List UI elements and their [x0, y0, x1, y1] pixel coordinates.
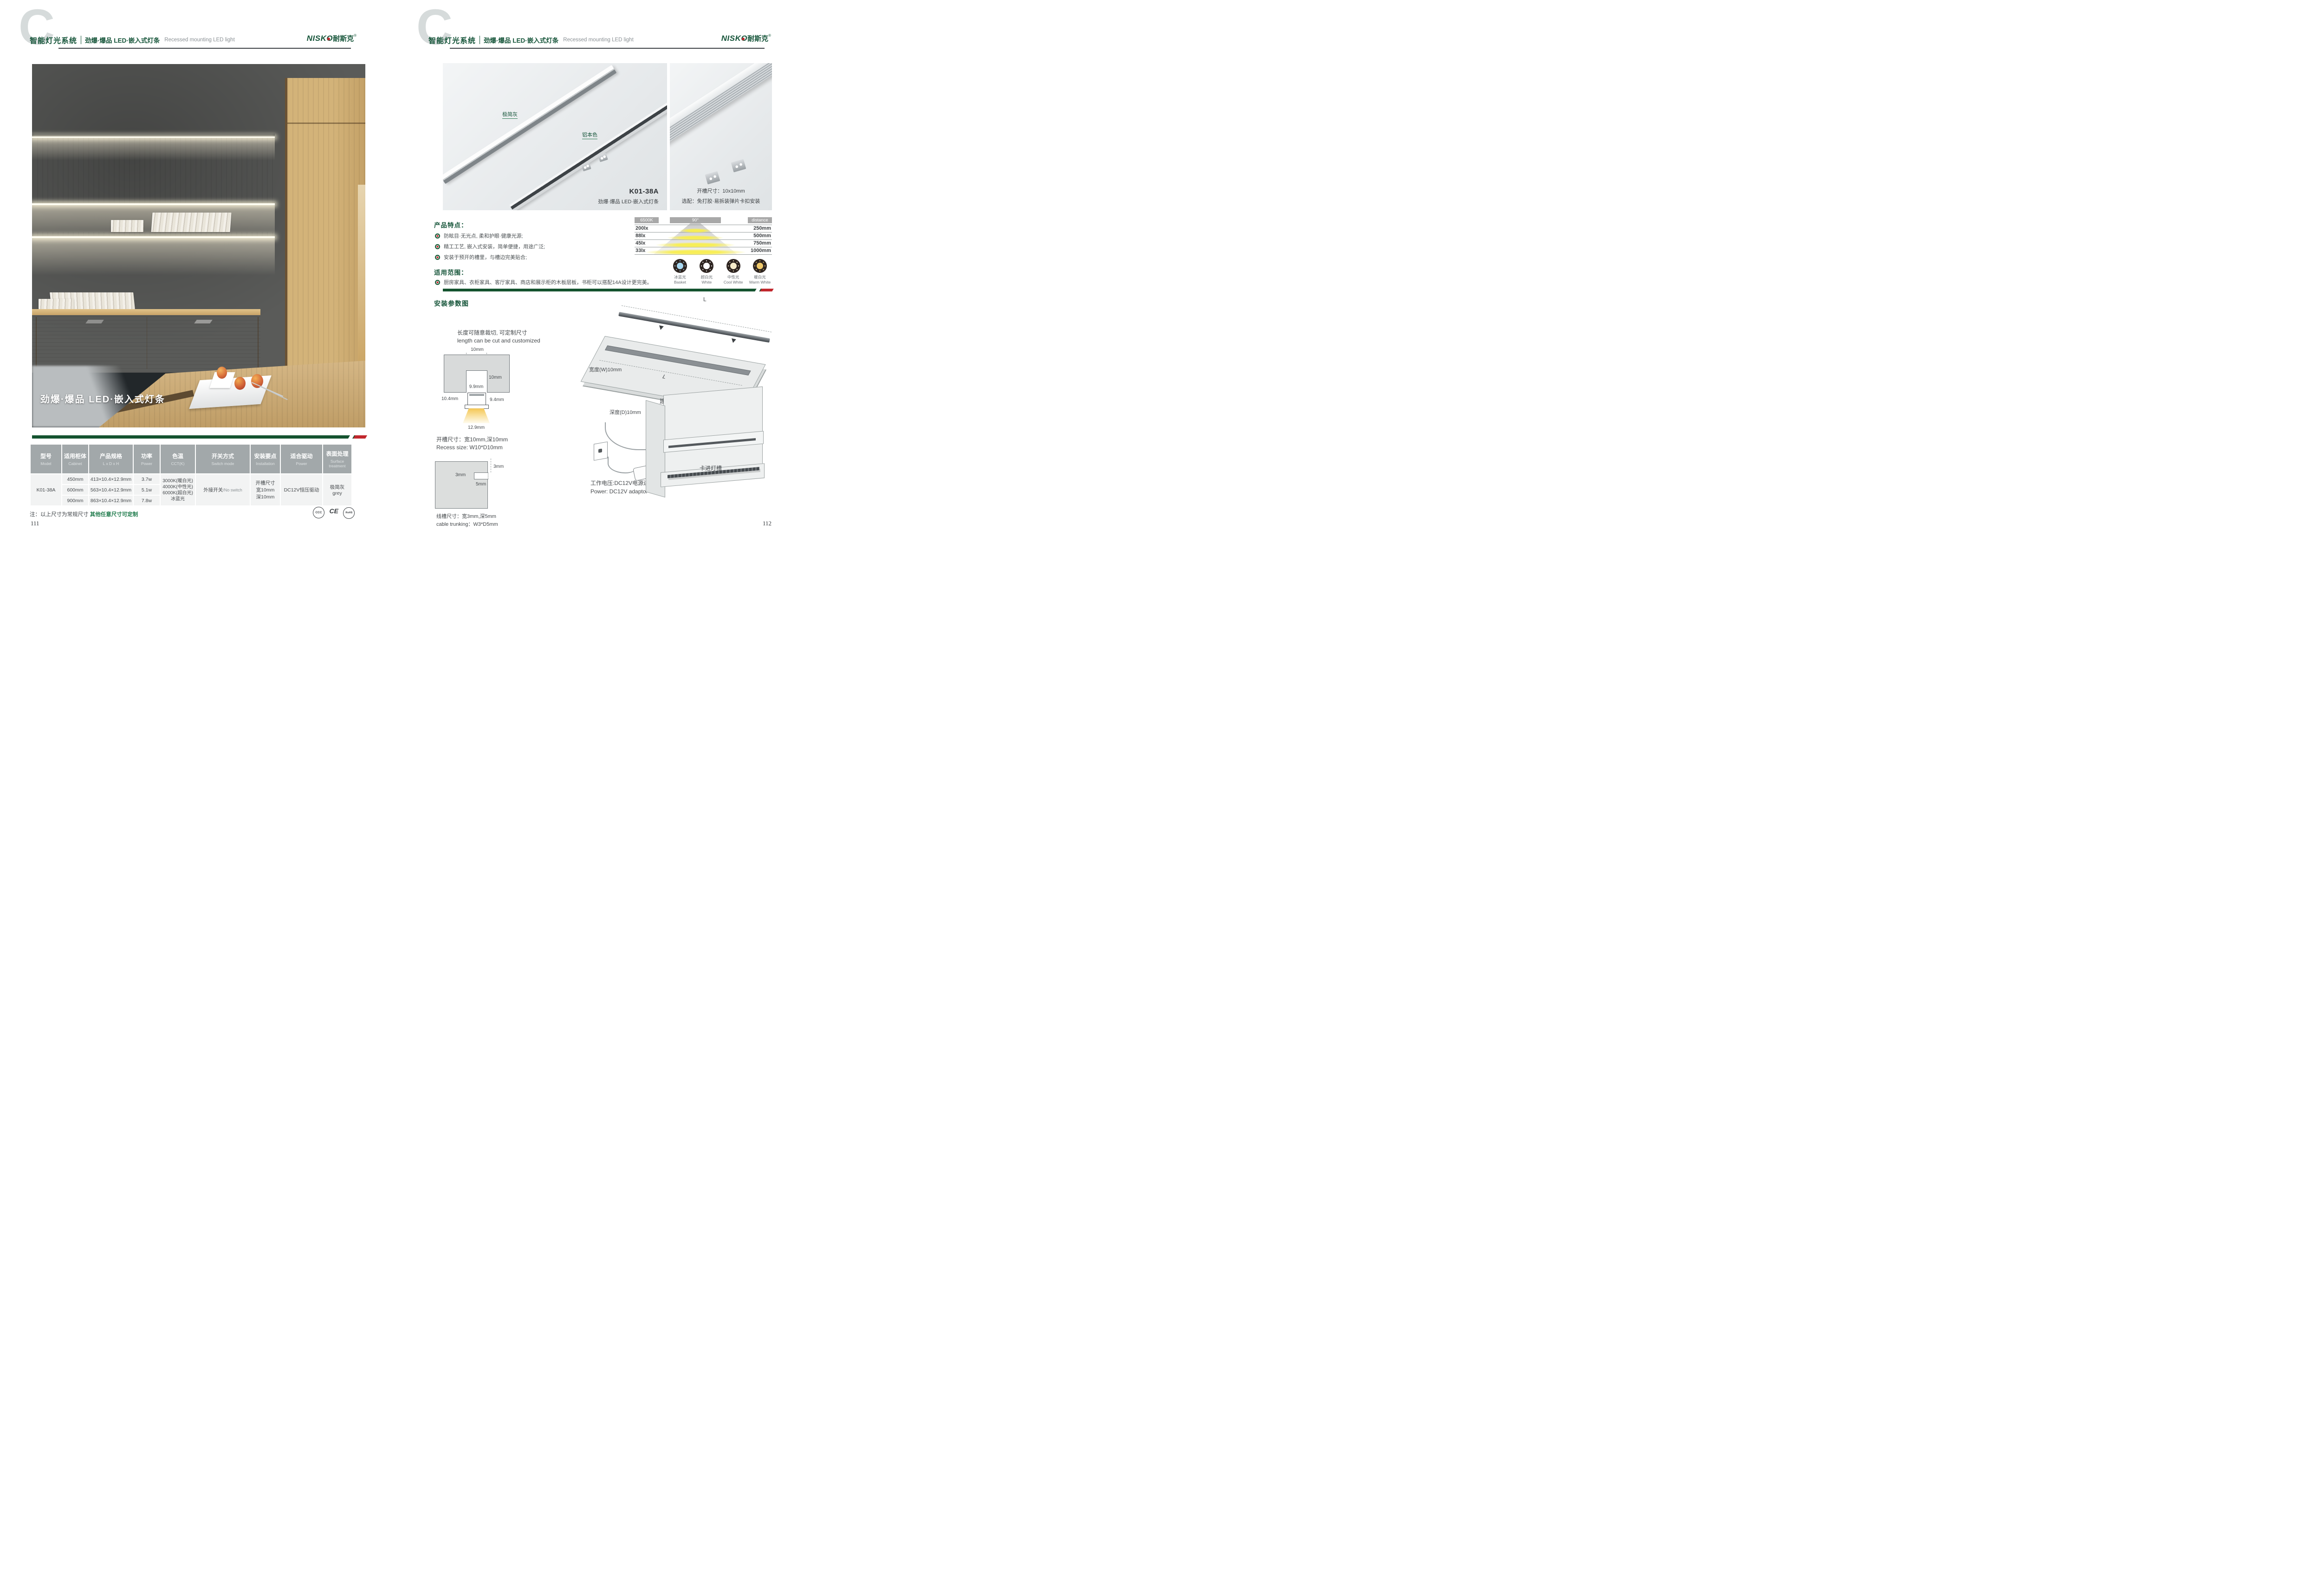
trunk-size-cn: 线槽尺寸：宽3mm,深5mm [436, 512, 496, 520]
mounting-clip [731, 159, 746, 173]
color-label-aluminum: 铝本色 [582, 131, 597, 139]
light-cone [463, 408, 490, 423]
slot-size-caption: 开槽尺寸：10x10mm [670, 187, 772, 194]
photo-shelf [32, 232, 275, 236]
photo-peach [217, 367, 227, 379]
photo-books [151, 213, 232, 232]
feature-item: 精工工艺, 嵌入式安装，简单便捷，用途广泛; [435, 243, 545, 250]
distance-value: 500mm [753, 233, 771, 239]
header-rule [58, 48, 351, 49]
beam-distance-chart: 6500K 90° distance 200lx 88lx 45lx 33lx … [635, 217, 772, 257]
brand-logo-cn: 耐斯克 [747, 35, 768, 43]
dim-inner-width: 9.9mm [466, 384, 486, 389]
width-label: 宽度(W)10mm [589, 366, 622, 373]
light-pool [656, 242, 735, 248]
header-system-title: 智能灯光系统 [30, 34, 77, 45]
cabinet-back-panel [663, 387, 763, 474]
cell-cabinet: 450mm [62, 474, 88, 484]
cell-switch: 外接开关/No switch [196, 474, 250, 505]
cable [605, 422, 648, 450]
dim-top-width: 10mm [467, 347, 487, 352]
spec-row: K01-38A 450mm 413×10.4×12.9mm 3.7w 3000K… [31, 474, 351, 484]
photo-caption: 劲爆·爆品 LED·嵌入式灯条 [40, 392, 165, 405]
feature-item: 防眩目·无光点, 柔和护眼·健康光源; [435, 232, 523, 239]
divider-red-tip [353, 435, 367, 439]
photo-wood-panel [32, 138, 275, 203]
dim-right-height: 9.4mm [490, 397, 504, 402]
light-color-options: 冰蓝光Basket 超白光White 中性光Cool White 暖白光Warm… [668, 259, 772, 284]
power-spec-en: Power: DC12V adaptor [590, 488, 648, 495]
cable-trunk-diagram: 3mm 3mm 5mm [435, 459, 519, 510]
beam-distance-label: distance [748, 217, 772, 223]
cell-cabinet: 600mm [62, 485, 88, 495]
photo-sideboard-top [32, 309, 260, 315]
rohs-cert-icon: RoHS [343, 507, 355, 519]
header-subtitle-cn: 劲爆·爆品 LED·嵌入式灯条 [484, 35, 558, 45]
target-bullet-icon [435, 280, 440, 285]
depth-label: 深度(D)10mm [609, 408, 641, 416]
scope-item: 厨房家具、衣柜家具、客厅家具、商店和展示柜的木板层板，书柜可以搭配14A设计更完… [435, 278, 667, 286]
led-strip-gray [443, 65, 616, 184]
distance-value: 1000mm [751, 248, 771, 253]
light-color-warm-white: 暖白光Warm White [748, 259, 772, 284]
col-cct: 色温CCT(K) [161, 445, 195, 473]
cell-install: 开槽尺寸 宽10mm 深10mm [251, 474, 280, 505]
lifestyle-photo: 劲爆·爆品 LED·嵌入式灯条 [32, 64, 365, 427]
page-right: C 智能灯光系统 劲爆·爆品 LED·嵌入式灯条 Recessed mounti… [389, 0, 779, 532]
photo-books [39, 299, 74, 309]
col-driver: 适合驱动Power [281, 445, 322, 473]
model-number: K01-38A [629, 187, 659, 195]
brand-logo-dot-icon [742, 38, 745, 40]
distance-value: 750mm [753, 240, 771, 246]
target-bullet-icon [435, 233, 440, 239]
cabinet-sketch: 卡进灯槽 [645, 391, 773, 498]
page-left: C 智能灯光系统 劲爆·爆品 LED·嵌入式灯条 Recessed mounti… [0, 0, 389, 532]
cell-power: 3.7w [134, 474, 160, 484]
beam-cct-label: 6500K [635, 217, 659, 223]
dim-bottom-width: 12.9mm [463, 425, 490, 430]
cell-cabinet: 900mm [62, 496, 88, 505]
lux-value: 33lx [635, 248, 645, 253]
spec-header-row: 型号Model 适用柜体Cabinet 产品规格L x D x H 功率Powe… [31, 445, 351, 473]
header-rule [450, 48, 765, 49]
brand-logo-cn: 耐斯克 [333, 35, 354, 43]
cross-section-diagram: 10mm 10mm 9.9mm 10.4mm 9.4mm 12.9mm [441, 347, 516, 433]
product-photo-strips: 极简灰 铝本色 K01-38A 劲爆·爆品 LED·嵌入式灯条 [443, 63, 667, 210]
col-power: 功率Power [134, 445, 160, 473]
mounting-clip [705, 171, 720, 185]
feature-item: 安装于预开的槽里，与槽边完美贴合; [435, 253, 527, 261]
header-separator [480, 36, 480, 44]
profile-flange [465, 405, 489, 409]
divider-bar [32, 435, 365, 439]
ce-cert-icon: CE [329, 507, 338, 515]
dim-depth: 10mm [488, 375, 502, 380]
beam-angle-label: 90° [670, 217, 721, 223]
col-surface: 表面处理Surface treatment [323, 445, 351, 473]
certifications: CCC CE RoHS [310, 507, 355, 519]
cell-cct: 3000K(暖白光) 4000K(中性光) 6000K(超白光) 冰蓝光 [161, 474, 195, 505]
beam-gridline [635, 225, 772, 225]
distance-value: 250mm [753, 226, 771, 231]
catalog-spread: C 智能灯光系统 劲爆·爆品 LED·嵌入式灯条 Recessed mounti… [0, 0, 779, 532]
cell-driver: DC12V恒压驱动 [281, 474, 322, 505]
features-title: 产品特点： [434, 220, 468, 229]
scope-title: 适用范围： [434, 267, 468, 277]
cell-surface: 极简灰 grey [323, 474, 351, 505]
target-bullet-icon [435, 244, 440, 249]
col-model: 型号Model [31, 445, 61, 473]
arrow-down-icon [658, 325, 664, 330]
cut-note-cn: 长度可随意裁切, 可定制尺寸 [457, 329, 527, 336]
light-color-cool-white: 中性光Cool White [721, 259, 746, 284]
note-highlight: 其他任意尺寸可定制 [90, 512, 138, 517]
col-size: 产品规格L x D x H [89, 445, 133, 473]
sun-icon [726, 259, 740, 273]
cell-power: 5.1w [134, 485, 160, 495]
divider-red-tip [760, 289, 773, 291]
header-subtitle-cn: 劲爆·爆品 LED·嵌入式灯条 [85, 35, 160, 45]
photo-light-wash [32, 238, 275, 275]
cell-size: 413×10.4×12.9mm [89, 474, 133, 484]
brand-logo-registered: ® [354, 33, 357, 38]
sun-icon [700, 259, 713, 273]
trunk-dim-top: 3mm [493, 464, 504, 469]
ccc-cert-icon: CCC [313, 507, 324, 518]
dim-line [491, 459, 491, 472]
sun-icon [673, 259, 687, 273]
cell-size: 863×10.4×12.9mm [89, 496, 133, 505]
lux-value: 45lx [635, 240, 645, 246]
brand-logo-registered: ® [768, 33, 771, 38]
table-note: 注：以上尺寸为常规尺寸 其他任意尺寸可定制 [30, 510, 138, 518]
install-section-title: 安装参数图 [434, 299, 469, 308]
spec-table: 型号Model 适用柜体Cabinet 产品规格L x D x H 功率Powe… [30, 444, 352, 506]
photo-books [111, 220, 143, 232]
trunk-slot [474, 472, 488, 479]
sun-icon [753, 259, 767, 273]
header: 智能灯光系统 劲爆·爆品 LED·嵌入式灯条 Recessed mounting… [30, 34, 235, 45]
header-subtitle-en: Recessed mounting LED light [164, 37, 235, 43]
drawer-handle [85, 320, 104, 323]
wall-plate [594, 441, 608, 460]
product-photo-profile: 开槽尺寸：10x10mm 选配：免打胶·易拆装弹片卡扣安装 [670, 63, 772, 210]
header-separator [81, 36, 81, 44]
trunk-size-en: cable trunking：W3*D5mm [436, 520, 498, 528]
trunk-dim-depth: 5mm [476, 482, 486, 487]
photo-peach [234, 377, 246, 390]
brand-logo: NISKO耐斯克® [703, 33, 771, 43]
target-bullet-icon [435, 255, 440, 260]
header-system-title: 智能灯光系统 [428, 34, 476, 45]
board-groove [605, 345, 751, 375]
arrow-down-icon [731, 338, 736, 343]
drawer-handle [194, 320, 213, 323]
dim-left-height: 10.4mm [441, 396, 458, 401]
col-install: 安装要点Installation [251, 445, 280, 473]
brand-logo: NISKO耐斯克® [289, 33, 357, 43]
recess-size-cn: 开槽尺寸：宽10mm,深10mm [436, 435, 508, 443]
clip-in-label: 卡进灯槽 [700, 464, 722, 472]
cell-model: K01-38A [31, 474, 61, 505]
model-caption: 劲爆·爆品 LED·嵌入式灯条 [598, 198, 659, 205]
lux-value: 88lx [635, 233, 645, 239]
page-number: 112 [763, 520, 772, 527]
length-label-mid: L [661, 374, 668, 380]
light-color-ice-blue: 冰蓝光Basket [668, 259, 692, 284]
page-number: 111 [31, 520, 39, 527]
light-pool [668, 235, 723, 240]
light-pool [679, 228, 712, 233]
header: 智能灯光系统 劲爆·爆品 LED·嵌入式灯条 Recessed mounting… [428, 34, 634, 45]
color-label-gray: 极简灰 [502, 110, 518, 119]
light-color-white: 超白光White [694, 259, 719, 284]
photo-sideboard [32, 315, 260, 373]
cut-note-en: length can be cut and customized [457, 337, 540, 344]
col-switch: 开关方式Switch mode [196, 445, 250, 473]
cell-size: 563×10.4×12.9mm [89, 485, 133, 495]
light-pool [646, 249, 746, 255]
header-subtitle-en: Recessed mounting LED light [563, 37, 634, 43]
trunk-dim-width: 3mm [455, 472, 466, 478]
col-cabinet: 适用柜体Cabinet [62, 445, 88, 473]
cell-power: 7.8w [134, 496, 160, 505]
profile-closeup [670, 63, 772, 151]
recess-size-en: Recess size: W10*D10mm [436, 444, 503, 451]
divider-bar [443, 289, 772, 291]
clip-option-caption: 选配：免打胶·易拆装弹片卡扣安装 [670, 197, 772, 205]
length-label-top: L [703, 296, 707, 303]
brand-logo-dot-icon [327, 38, 330, 40]
lux-value: 200lx [635, 226, 648, 231]
